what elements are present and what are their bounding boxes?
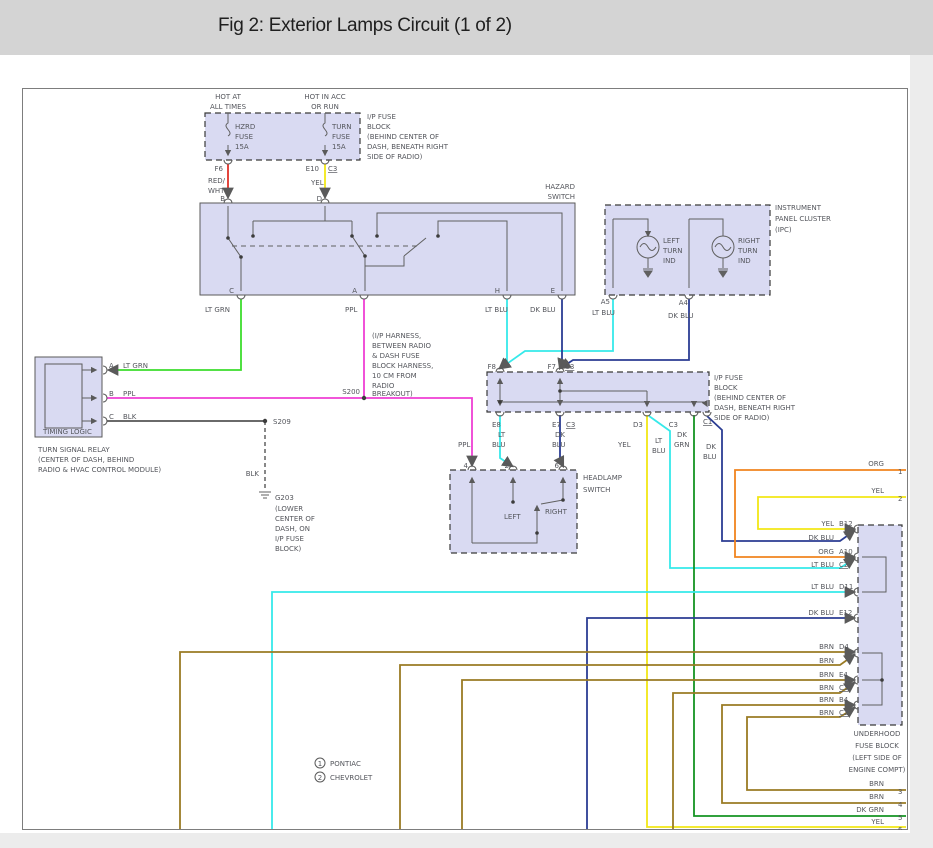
lbl-t6: 6 (555, 462, 560, 470)
svg-text:BLU: BLU (703, 453, 716, 461)
lbl-c3-f7: C3 (565, 363, 574, 371)
wiring-diagram: 1 2 PONTIAC CHEVROLET HOT AT ALL TIMES H… (22, 88, 908, 830)
lbl-ppl-relay: PPL (123, 390, 135, 398)
lbl-brn-e4: BRN (819, 671, 834, 679)
lbl-d4: D4 (839, 643, 849, 651)
lbl-left: LEFT (504, 513, 521, 521)
wiring-diagram-frame: 1 2 PONTIAC CHEVROLET HOT AT ALL TIMES H… (22, 88, 908, 830)
lbl-underhood: UNDERHOOD (854, 730, 901, 738)
svg-text:CENTER OF: CENTER OF (275, 515, 315, 523)
lbl-t2: 2 (505, 462, 509, 470)
lbl-e: E (551, 287, 555, 295)
diagram-border (23, 89, 908, 830)
legend-2-num: 2 (318, 774, 322, 782)
lbl-right-turn-ind: RIGHT (738, 237, 761, 245)
lbl-f6: F6 (215, 165, 224, 173)
lbl-t4: 4 (464, 462, 469, 470)
lbl-c1: C1 (703, 418, 712, 426)
lbl-n6: 6 (898, 826, 903, 830)
hazard-switch-box (200, 203, 575, 295)
svg-text:(BEHIND CENTER OF: (BEHIND CENTER OF (714, 394, 786, 402)
svg-text:FUSE: FUSE (332, 133, 350, 141)
svg-text:(IPC): (IPC) (775, 226, 792, 234)
svg-text:SIDE OF RADIO): SIDE OF RADIO) (367, 153, 423, 161)
lbl-yel-b12: YEL (820, 520, 834, 528)
lbl-c2: C2 (839, 561, 848, 569)
svg-text:GRN: GRN (674, 441, 690, 449)
lbl-n3: 3 (898, 788, 902, 796)
svg-text:BLU: BLU (552, 441, 565, 449)
lbl-s209: S209 (273, 418, 291, 426)
svg-text:BRN: BRN (819, 684, 834, 692)
lbl-yel-edge: YEL (870, 487, 884, 495)
lbl-a4: A4 (679, 299, 689, 307)
lbl-e8: E8 (492, 421, 501, 429)
lbl-lt-blu-c2: LT BLU (811, 561, 834, 569)
lbl-b: B (220, 195, 225, 203)
page-title: Fig 2: Exterior Lamps Circuit (1 of 2) (218, 15, 512, 37)
svg-text:PANEL CLUSTER: PANEL CLUSTER (775, 215, 831, 223)
svg-text:DASH, BENEATH RIGHT: DASH, BENEATH RIGHT (367, 143, 449, 151)
lbl-f8: F8 (488, 363, 496, 371)
svg-text:15A: 15A (332, 143, 346, 151)
svg-text:SWITCH: SWITCH (583, 486, 610, 494)
svg-text:BLU: BLU (492, 441, 505, 449)
lbl-headlamp: HEADLAMP (583, 474, 622, 482)
lbl-blk-relay: BLK (123, 413, 137, 421)
lbl-red-wht: RED/ (208, 177, 226, 185)
lbl-ppl-hl: PPL (458, 441, 470, 449)
splice-s209 (263, 419, 267, 423)
lbl-n2: 2 (898, 495, 902, 503)
legend-1-num: 1 (318, 760, 322, 768)
lbl-n5: 5 (898, 814, 902, 822)
lbl-ip-fuse-block-top: I/P FUSE (367, 113, 396, 121)
svg-text:TURN: TURN (737, 247, 758, 255)
lbl-a10: A10 (839, 548, 853, 556)
svg-text:BLOCK: BLOCK (714, 384, 738, 392)
lbl-g203: G203 (275, 494, 294, 502)
lbl-relay-c: C (109, 413, 114, 421)
lbl-lt-blu-d11: LT BLU (811, 583, 834, 591)
svg-text:BRN: BRN (819, 709, 834, 717)
lbl-left-turn-ind: LEFT (663, 237, 680, 245)
svg-text:(BEHIND CENTER OF: (BEHIND CENTER OF (367, 133, 439, 141)
lbl-b12: B12 (839, 520, 853, 528)
legend-chevrolet: CHEVROLET (330, 774, 373, 782)
lbl-e4: E4 (839, 671, 848, 679)
svg-text:I/P FUSE: I/P FUSE (275, 535, 304, 543)
lbl-c: C (229, 287, 234, 295)
legend-pontiac: PONTIAC (330, 760, 361, 768)
lbl-turn-signal-relay: TURN SIGNAL RELAY (37, 446, 110, 454)
lbl-hazard: HAZARD (545, 183, 575, 191)
svg-text:SIDE OF RADIO): SIDE OF RADIO) (714, 414, 770, 422)
lbl-b4: B4 (839, 696, 849, 704)
svg-text:10 CM FROM: 10 CM FROM (372, 372, 417, 380)
page: { "header": { "title": "Fig 2: Exterior … (0, 0, 933, 848)
lbl-h: H (495, 287, 500, 295)
svg-text:(LOWER: (LOWER (275, 505, 303, 513)
lbl-hot-in-acc: HOT IN ACC (304, 93, 345, 101)
svg-text:DASH, BENEATH RIGHT: DASH, BENEATH RIGHT (714, 404, 796, 412)
lbl-c3-right: C3 (669, 421, 678, 429)
svg-text:BRN: BRN (819, 657, 834, 665)
lbl-hot-at: HOT AT (215, 93, 242, 101)
lbl-dk-blu: DK BLU (530, 306, 556, 314)
svg-text:BLOCK: BLOCK (367, 123, 391, 131)
svg-text:DK: DK (555, 431, 565, 439)
lbl-relay-a: A (109, 362, 114, 370)
lbl-d11: D11 (839, 583, 853, 591)
lbl-yel-6: YEL (870, 818, 884, 826)
lbl-c3-e7: C3 (566, 421, 575, 429)
lbl-n4: 4 (898, 801, 903, 809)
svg-text:FUSE: FUSE (235, 133, 253, 141)
splice-s200 (362, 396, 366, 400)
svg-text:BLOCK): BLOCK) (275, 545, 301, 553)
lbl-relay-b: B (109, 390, 114, 398)
lbl-blk: BLK (246, 470, 260, 478)
lbl-e10: E10 (306, 165, 319, 173)
lbl-a5: A5 (601, 298, 610, 306)
lbl-dk-grn-5: DK GRN (856, 806, 884, 814)
lbl-yel-top: YEL (310, 179, 324, 187)
lbl-hzrd: HZRD (235, 123, 255, 131)
svg-text:15A: 15A (235, 143, 249, 151)
svg-text:ENGINE COMPT): ENGINE COMPT) (849, 766, 906, 774)
lbl-turn-fuse: TURN (331, 123, 352, 131)
lbl-all-times: ALL TIMES (210, 103, 247, 111)
svg-text:& DASH FUSE: & DASH FUSE (372, 352, 420, 360)
lbl-brn-3: BRN (869, 780, 884, 788)
lbl-lt-blu: LT BLU (485, 306, 508, 314)
lbl-c3-uh: C3 (839, 684, 848, 692)
lbl-lt-grn: LT GRN (205, 306, 230, 314)
svg-text:DASH, ON: DASH, ON (275, 525, 310, 533)
svg-text:TURN: TURN (662, 247, 683, 255)
svg-text:DK: DK (706, 443, 716, 451)
svg-text:BETWEEN RADIO: BETWEEN RADIO (372, 342, 432, 350)
lbl-org-a10: ORG (818, 548, 834, 556)
lbl-a: A (352, 287, 357, 295)
lbl-yel-d3: YEL (617, 441, 631, 449)
lbl-s200: S200 (342, 388, 360, 396)
underhood-fuse-block-box (858, 525, 902, 725)
lbl-e12: E12 (839, 609, 852, 617)
svg-text:SWITCH: SWITCH (548, 193, 575, 201)
ip-fuse-block-mid-box (487, 372, 709, 412)
lbl-n1: 1 (898, 468, 902, 476)
svg-text:LT: LT (498, 431, 506, 439)
lbl-d: D (317, 195, 322, 203)
svg-text:LT: LT (655, 437, 663, 445)
lbl-dk-blu-e12: DK BLU (808, 609, 834, 617)
svg-text:(LEFT SIDE OF: (LEFT SIDE OF (852, 754, 902, 762)
lbl-timing-logic: TIMING LOGIC (42, 428, 92, 436)
lbl-lt-grn-relay: LT GRN (123, 362, 148, 370)
lbl-harness-note: (I/P HARNESS, (372, 332, 421, 340)
lbl-c3-top: C3 (328, 165, 337, 173)
svg-text:RADIO & HVAC CONTROL MODULE): RADIO & HVAC CONTROL MODULE) (38, 466, 161, 474)
lbl-brn-4: BRN (869, 793, 884, 801)
svg-text:IND: IND (738, 257, 751, 265)
lbl-ip-fuse-block-mid: I/P FUSE (714, 374, 743, 382)
lbl-dk-blu-b12: DK BLU (808, 534, 834, 542)
svg-text:RADIO: RADIO (372, 382, 395, 390)
svg-text:IND: IND (663, 257, 676, 265)
svg-text:(CENTER OF DASH, BEHIND: (CENTER OF DASH, BEHIND (38, 456, 134, 464)
svg-text:BLU: BLU (652, 447, 665, 455)
lbl-org-edge: ORG (868, 460, 884, 468)
lbl-brn-b4: BRN (819, 696, 834, 704)
lbl-e7: E7 (552, 421, 561, 429)
svg-text:BREAKOUT): BREAKOUT) (372, 390, 413, 398)
svg-text:BLOCK HARNESS,: BLOCK HARNESS, (372, 362, 433, 370)
svg-text:FUSE BLOCK: FUSE BLOCK (855, 742, 899, 750)
lbl-brn-d4: BRN (819, 643, 834, 651)
lbl-ppl: PPL (345, 306, 357, 314)
title-bar: Fig 2: Exterior Lamps Circuit (1 of 2) (0, 0, 933, 55)
lbl-lt-blu-a5: LT BLU (592, 309, 615, 317)
lbl-dk-blu-a4: DK BLU (668, 312, 694, 320)
lbl-ipc: INSTRUMENT (775, 204, 822, 212)
lbl-or-run: OR RUN (311, 103, 339, 111)
lbl-c2-uh: C2 (839, 709, 848, 717)
lbl-f7: F7 (548, 363, 556, 371)
lbl-right: RIGHT (545, 508, 568, 516)
svg-text:WHT: WHT (208, 187, 225, 195)
lbl-d3: D3 (633, 421, 643, 429)
svg-text:DK: DK (677, 431, 687, 439)
